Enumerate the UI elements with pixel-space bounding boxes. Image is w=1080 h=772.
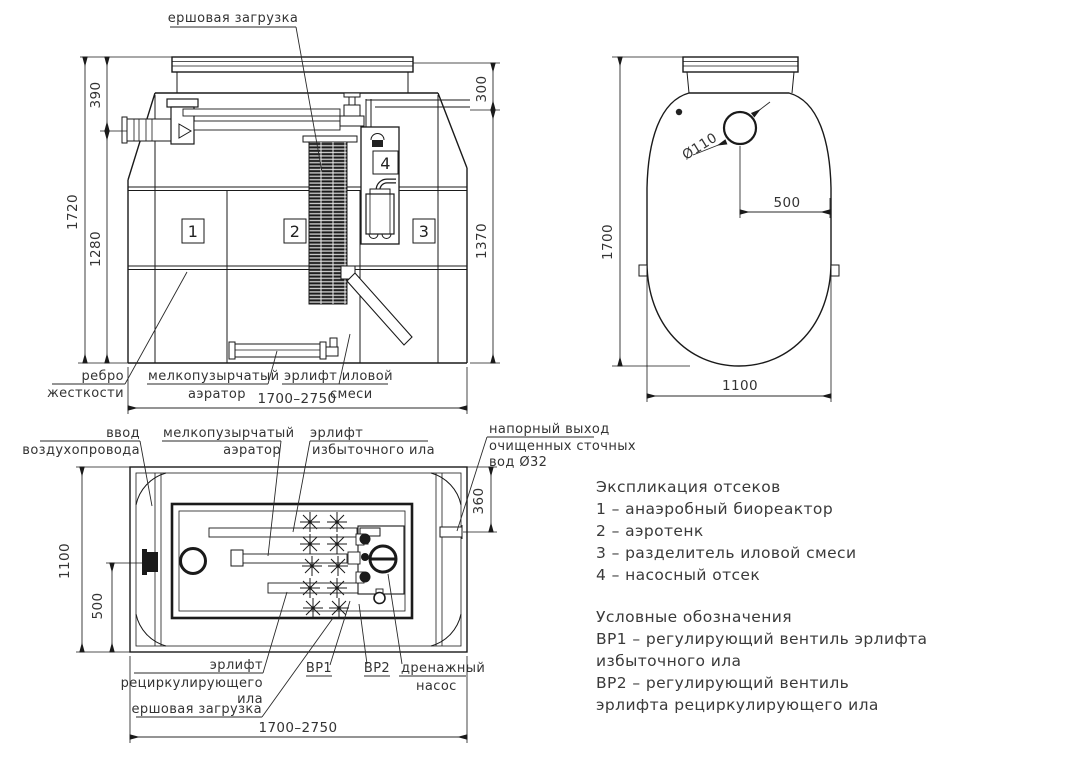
plan-dim-360: 360 xyxy=(471,488,487,515)
plan-label-vr2: ВР2 xyxy=(364,661,390,676)
plan-label-excess-airlift-1: эрлифт xyxy=(310,426,363,441)
plan-label-outlet-1: напорный выход xyxy=(489,422,610,437)
front-label-aerator-2: аэратор xyxy=(188,387,246,402)
legend-vr1-line1: ВР1 – регулирующий вентиль эрлифта xyxy=(596,630,927,648)
plan-label-drain-pump-2: насос xyxy=(416,679,457,694)
legend-vr1-line2: избыточного ила xyxy=(596,652,741,670)
front-pump-compartment xyxy=(361,127,399,244)
front-valve-manifold xyxy=(340,93,470,190)
front-dim-390: 390 xyxy=(88,82,104,109)
plan-aerator-pipe xyxy=(243,554,347,563)
front-air-pipes xyxy=(183,109,340,130)
side-view: Ø110 1700 500 1100 xyxy=(600,57,839,402)
plan-label-outlet-3: вод Ø32 xyxy=(489,455,547,470)
side-lug-left xyxy=(639,265,647,276)
plan-label-recirc-2: рециркулирующего xyxy=(121,676,263,691)
legend-symbols-title: Условные обозначения xyxy=(596,608,792,626)
legend-title: Экспликация отсеков xyxy=(596,478,781,496)
legend-item-2: 2 – аэротенк xyxy=(596,522,704,540)
front-dim-1720: 1720 xyxy=(65,194,81,230)
front-comp-4: 4 xyxy=(380,154,391,173)
plan-label-excess-airlift-2: избыточного ила xyxy=(312,443,435,458)
legend-item-3: 3 – разделитель иловой смеси xyxy=(596,544,856,562)
front-dim-300: 300 xyxy=(474,76,490,103)
front-label-airlift-2: смеси xyxy=(330,387,373,402)
front-comp-2: 2 xyxy=(290,222,301,241)
front-lid xyxy=(172,57,413,93)
plan-dim-width: 1700–2750 xyxy=(258,720,337,736)
side-lug-right xyxy=(831,265,839,276)
front-comp-1: 1 xyxy=(188,222,199,241)
plan-label-drain-pump-1: дренажный xyxy=(401,661,485,676)
plan-label-aerator-2: аэратор xyxy=(223,443,281,458)
front-label-airlift-1: эрлифт иловой xyxy=(284,369,393,384)
front-sludge-airlift xyxy=(341,266,412,345)
legend-item-1: 1 – анаэробный биореактор xyxy=(596,500,833,518)
front-comp-3: 3 xyxy=(419,222,430,241)
front-label-aerator-1: мелкопузырчатый xyxy=(148,369,279,384)
legend-item-4: 4 – насосный отсек xyxy=(596,566,760,584)
plan-dim-1100: 1100 xyxy=(57,543,73,579)
plan-dim-500: 500 xyxy=(90,593,106,620)
plan-inlet-tee xyxy=(181,549,206,574)
plan-label-brush: ершовая загрузка xyxy=(132,702,262,717)
legend-vr2-line2: эрлифта рециркулирующего ила xyxy=(596,696,879,714)
front-view: 1 2 3 4 1720 390 1280 300 1370 1700–2750… xyxy=(47,11,500,414)
side-inlet-hole xyxy=(724,112,756,144)
legend-text: Экспликация отсеков 1 – анаэробный биоре… xyxy=(596,478,927,714)
front-dim-1280: 1280 xyxy=(88,231,104,267)
front-label-rib-1: ребро xyxy=(82,369,124,384)
front-dim-1370: 1370 xyxy=(474,223,490,259)
technical-drawing-page: 1 2 3 4 1720 390 1280 300 1370 1700–2750… xyxy=(0,0,1080,772)
side-vent-dot xyxy=(676,109,682,115)
plan-label-aerator-1: мелкопузырчатый xyxy=(163,426,294,441)
septic-tank-drawing: 1 2 3 4 1720 390 1280 300 1370 1700–2750… xyxy=(0,0,1080,772)
plan-label-recirc-1: эрлифт xyxy=(210,658,263,673)
side-lid xyxy=(683,57,798,93)
plan-label-air-inlet-2: воздухопровода xyxy=(22,443,140,458)
front-label-rib-2: жесткости xyxy=(47,386,124,401)
plan-label-air-inlet-1: ввод xyxy=(106,426,140,441)
valve-vr1-symbol xyxy=(360,534,371,545)
valve-vr2-symbol xyxy=(360,572,371,583)
side-dim-1700: 1700 xyxy=(600,224,616,260)
plan-label-vr1: ВР1 xyxy=(306,661,332,676)
side-dim-hole: Ø110 xyxy=(680,130,721,164)
legend-vr2-line1: ВР2 – регулирующий вентиль xyxy=(596,674,849,692)
side-dimensions: Ø110 1700 500 1100 xyxy=(600,57,831,402)
front-inlet-pipe xyxy=(122,99,198,144)
plan-label-outlet-2: очищенных сточных xyxy=(489,439,636,454)
plan-excess-airlift-pipe xyxy=(209,528,357,537)
plan-view: 1100 500 360 1700–2750 ввод воздухопрово… xyxy=(22,422,636,743)
front-aerator-tube xyxy=(229,338,338,359)
front-dim-width: 1700–2750 xyxy=(257,391,336,407)
side-dim-500: 500 xyxy=(774,195,801,211)
plan-inlet-stub xyxy=(142,549,147,575)
side-dim-1100: 1100 xyxy=(722,378,758,394)
front-label-brush: ершовая загрузка xyxy=(168,11,298,26)
